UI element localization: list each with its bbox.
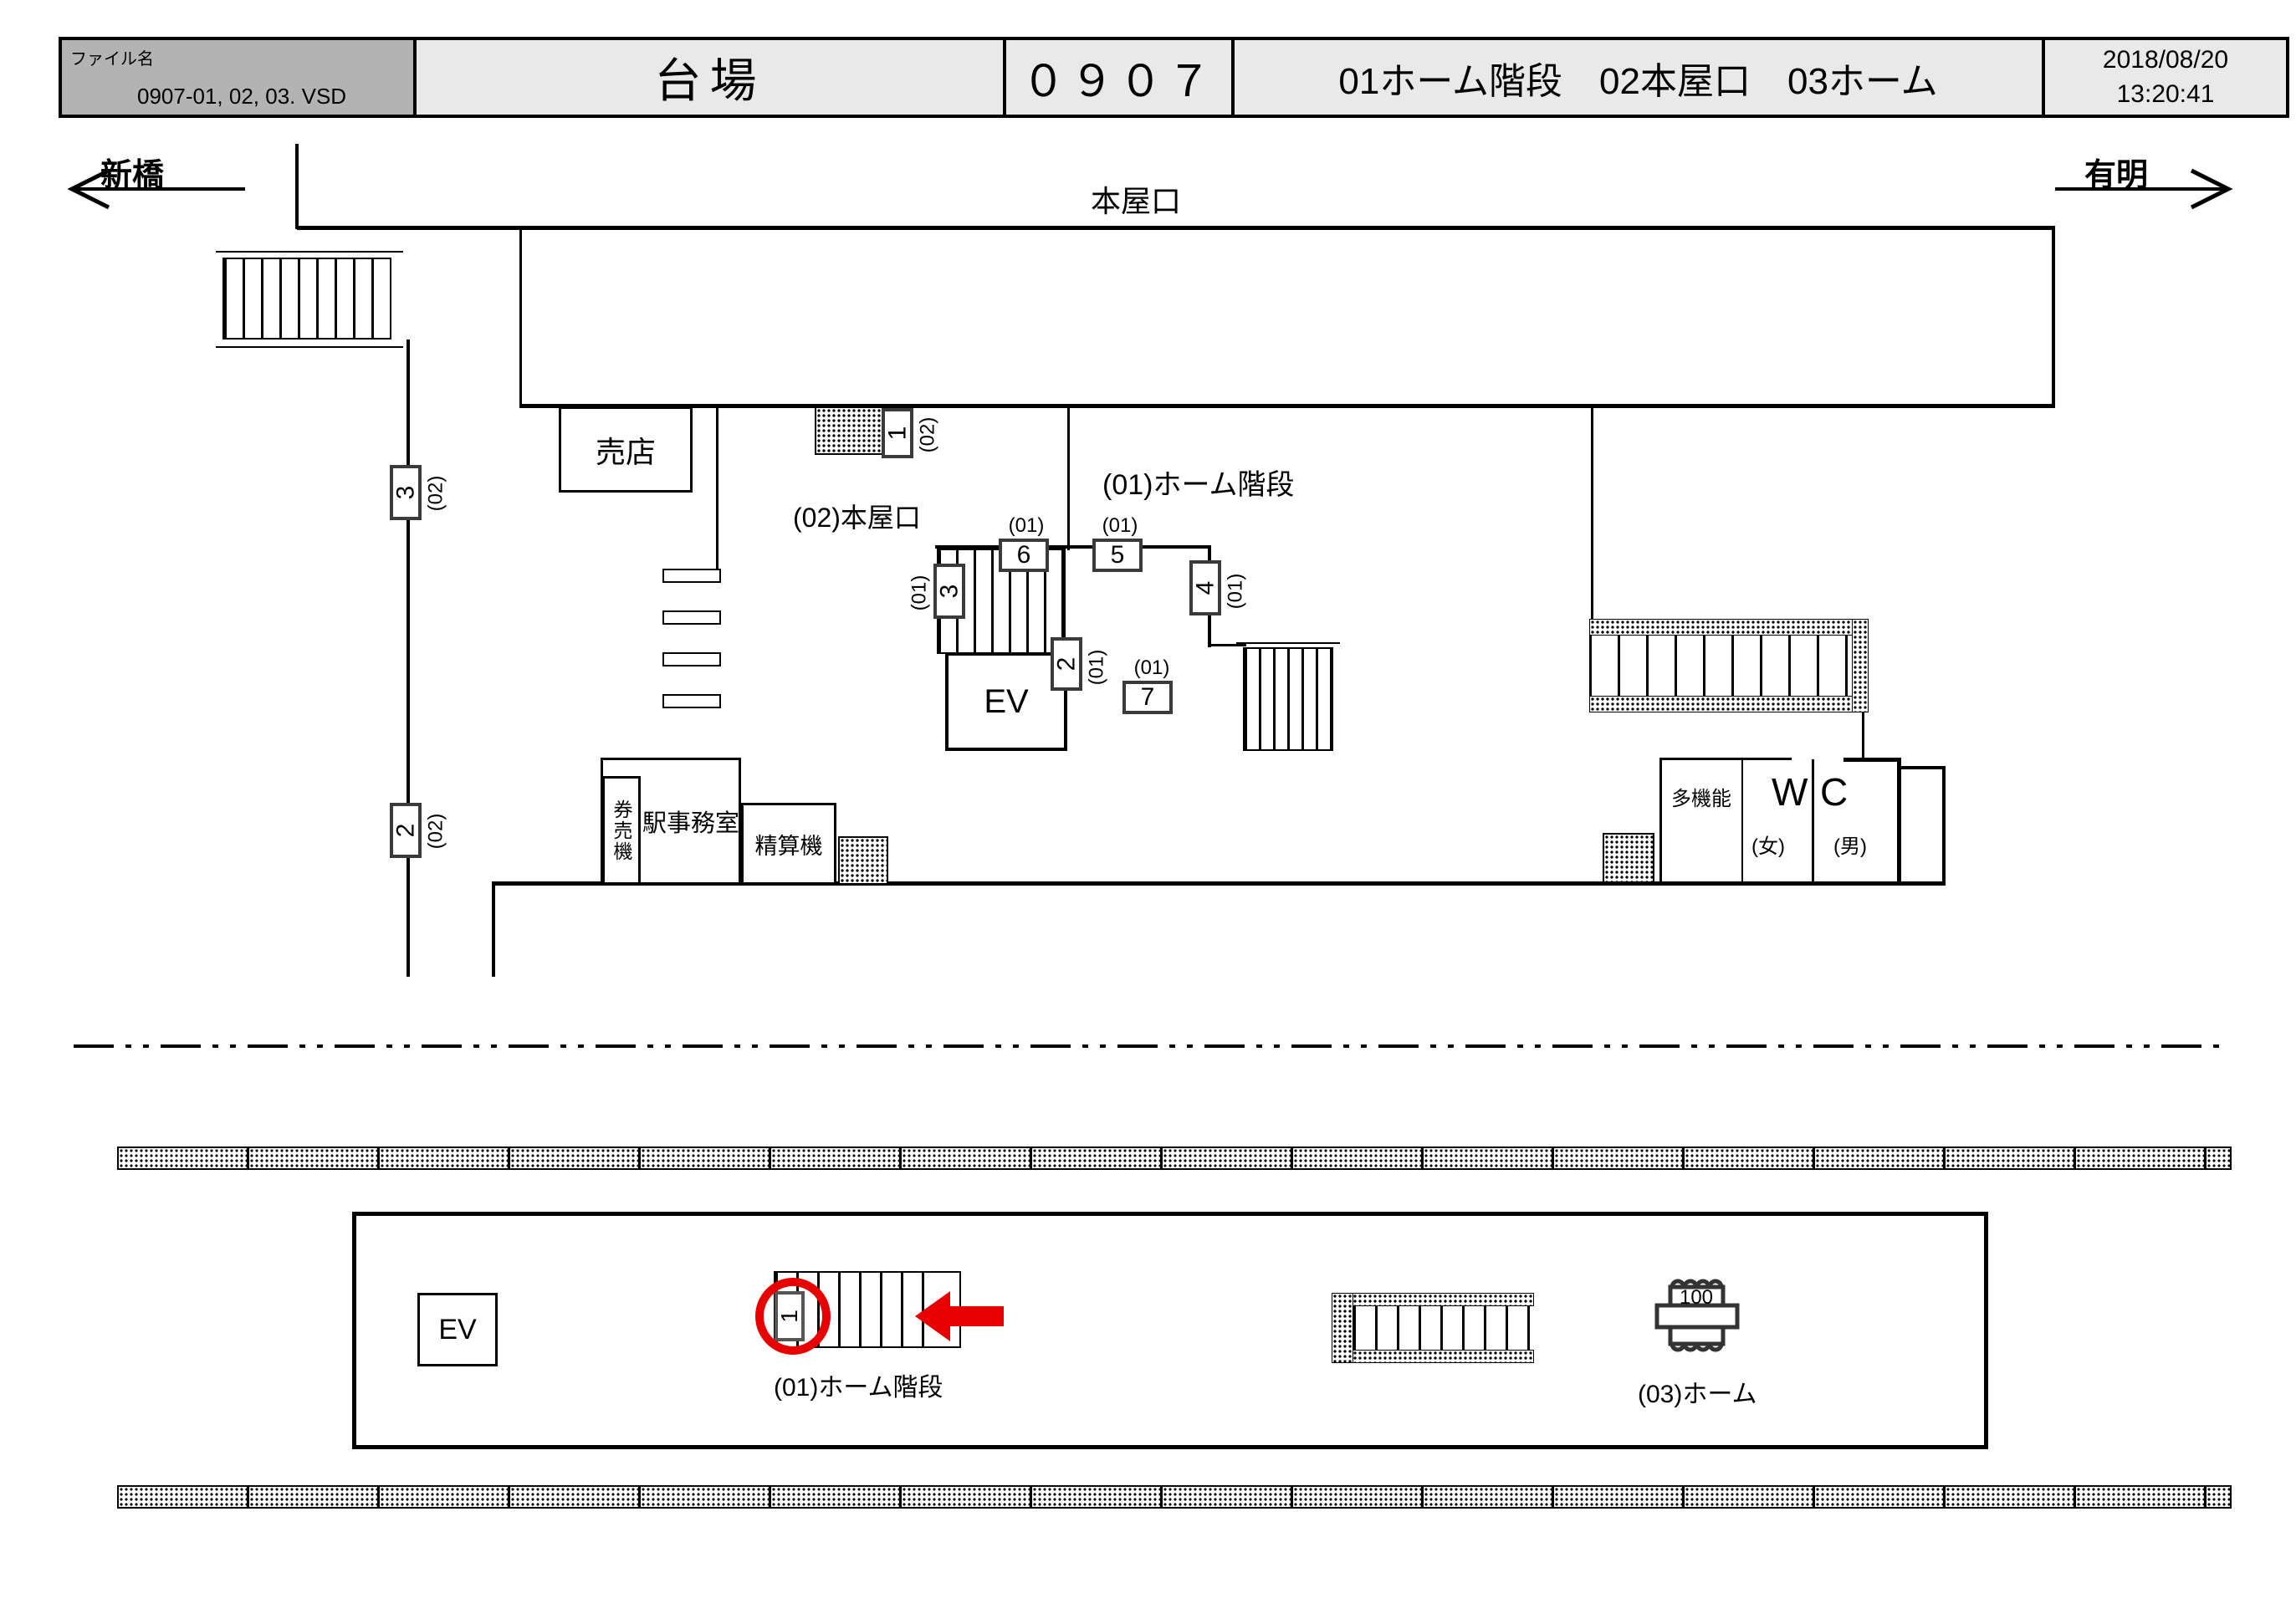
platform-outline (352, 1212, 1988, 1449)
camera-number: 1 (883, 426, 912, 441)
shop-box: 売店 (559, 406, 693, 493)
fare-machine-box: 精算機 (741, 803, 836, 885)
camera-marker-2-01: 2 (1051, 637, 1082, 691)
wall (295, 144, 299, 229)
wc-label-w: W (1772, 769, 1808, 815)
male-toilet-label: (男) (1833, 830, 1867, 859)
elevator-box: EV (945, 652, 1067, 751)
wc-label-c: C (1820, 769, 1848, 815)
wall (1843, 758, 1901, 762)
wall (1942, 766, 1946, 883)
station-map-page: ファイル名 0907-01, 02, 03. VSD 台場 ０９０７ 01ホーム… (0, 0, 2296, 1624)
station-name: 台場 (655, 43, 765, 111)
camera-100-label: 100 (1680, 1286, 1713, 1309)
camera-area-tag: (01) (1086, 642, 1107, 692)
track-centerline (74, 1040, 2230, 1052)
stairs-edge-line (216, 251, 403, 253)
camera-view-titles: 01ホーム階段 02本屋口 03ホーム (1338, 51, 1937, 105)
wall (1899, 766, 1946, 769)
platform-stairs-label: (01)ホーム階段 (774, 1366, 943, 1403)
elevator-label: EV (984, 683, 1028, 721)
entrance-label: 本屋口 (1091, 177, 1181, 221)
station-office-label-wrap: 駅事務室 (641, 758, 741, 885)
platform-home-label: (03)ホーム (1638, 1373, 1757, 1410)
camera-view-titles-cell: 01ホーム階段 02本屋口 03ホーム (1231, 40, 2042, 115)
wall (407, 340, 410, 977)
file-name-label: ファイル名 (70, 45, 154, 69)
multifunction-toilet-label-wrap: 多機能 (1661, 778, 1741, 815)
station-office-label: 駅事務室 (642, 804, 739, 839)
camera-area-tag: (02) (425, 806, 447, 856)
camera-area-tag: (02) (425, 468, 447, 518)
platform-elevator-box: EV (417, 1293, 498, 1366)
wall (1208, 644, 1246, 646)
camera-marker-3-02: 3 (390, 465, 422, 520)
pillar (662, 694, 721, 708)
wall (1067, 406, 1070, 550)
area01-label: (01)ホーム階段 (1102, 462, 1294, 503)
camera-marker-3-01: 3 (933, 564, 965, 619)
platform-edge-tactile-strip (117, 1147, 2232, 1170)
ticket-gate-block (838, 836, 888, 885)
camera-marker-7-01: 7 (1122, 681, 1173, 714)
fare-machine-label: 精算機 (755, 828, 823, 861)
camera-area-tag: (01) (1126, 657, 1178, 679)
direction-left-arrow-icon (65, 164, 249, 211)
wall (519, 404, 2055, 408)
camera-marker-1-02: 1 (882, 408, 913, 458)
wall (1659, 758, 1792, 760)
stairs (1243, 647, 1333, 751)
camera-marker-6-01: 6 (999, 539, 1049, 572)
station-name-cell: 台場 (413, 40, 1003, 115)
stairs (222, 258, 391, 340)
camera-marker-5-01: 5 (1092, 539, 1143, 572)
wall (519, 227, 522, 406)
female-toilet-label: (女) (1751, 830, 1785, 859)
camera-area-tag: (02) (917, 410, 938, 460)
wall (1897, 758, 1901, 886)
camera-area-tag: (01) (1094, 515, 1146, 537)
wall (1591, 408, 1593, 619)
wall (1659, 758, 1662, 883)
stairs-edge-line (216, 346, 403, 348)
station-code: ０９０７ (1021, 46, 1215, 109)
platform-elevator-label: EV (438, 1314, 476, 1346)
pillar (662, 569, 721, 583)
ticket-machine-box: 券売機 (602, 776, 641, 885)
camera-marker-4-01: 4 (1189, 560, 1221, 615)
camera-100-icon: 100 (1654, 1278, 1740, 1353)
wall (1862, 712, 1864, 761)
pillar (662, 652, 721, 666)
time-value: 13:20:41 (2117, 78, 2215, 112)
camera-area-tag: (01) (908, 567, 930, 619)
camera-area-tag: (01) (1225, 565, 1246, 617)
wall (716, 406, 718, 570)
highlight-circle (755, 1278, 831, 1355)
ticket-gate-block (1603, 833, 1654, 883)
stairs-hatched (1332, 1293, 1534, 1363)
platform-edge-tactile-strip (117, 1485, 2232, 1509)
camera-marker-2-02: 2 (390, 803, 422, 858)
header-bar: ファイル名 0907-01, 02, 03. VSD 台場 ０９０７ 01ホーム… (59, 37, 2289, 118)
multifunction-toilet-label: 多機能 (1671, 782, 1731, 811)
datetime-cell: 2018/08/20 13:20:41 (2042, 40, 2286, 115)
direction-right-arrow-icon (2051, 164, 2235, 211)
wall (1812, 759, 1814, 883)
wall (2052, 230, 2055, 407)
wall (492, 881, 495, 977)
station-code-cell: ０９０７ (1003, 40, 1231, 115)
file-name-cell: ファイル名 0907-01, 02, 03. VSD (62, 40, 413, 115)
file-name-value: 0907-01, 02, 03. VSD (137, 84, 346, 110)
wall (1741, 758, 1743, 883)
highlight-arrow-icon (915, 1289, 1007, 1343)
date-value: 2018/08/20 (2103, 43, 2228, 78)
ticket-gate-block (815, 406, 883, 455)
stairs-edge-line (1236, 642, 1340, 644)
shop-label: 売店 (596, 428, 656, 472)
area02-label: (02)本屋口 (793, 497, 921, 535)
stairs-hatched (1589, 619, 1869, 712)
pillar (662, 610, 721, 625)
camera-area-tag: (01) (1000, 515, 1052, 537)
ticket-machine-label: 券売機 (607, 799, 636, 862)
wall (297, 226, 2055, 230)
